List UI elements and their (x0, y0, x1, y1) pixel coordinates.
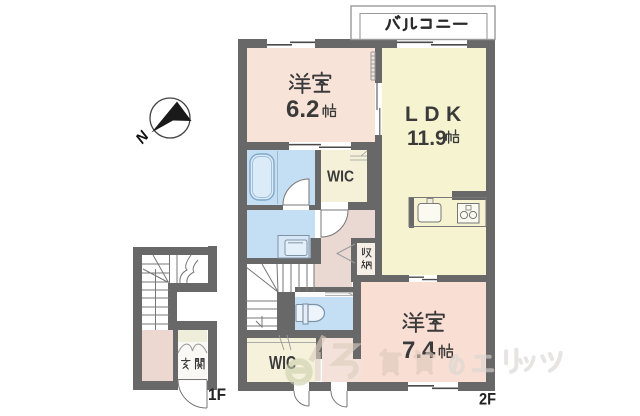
svg-text:WIC: WIC (327, 169, 354, 186)
svg-text:LDK: LDK (405, 103, 468, 126)
svg-text:2F: 2F (479, 390, 496, 409)
svg-text:1F: 1F (208, 385, 226, 404)
svg-text:11.9: 11.9 (407, 127, 447, 150)
svg-text:6.2: 6.2 (286, 96, 319, 123)
